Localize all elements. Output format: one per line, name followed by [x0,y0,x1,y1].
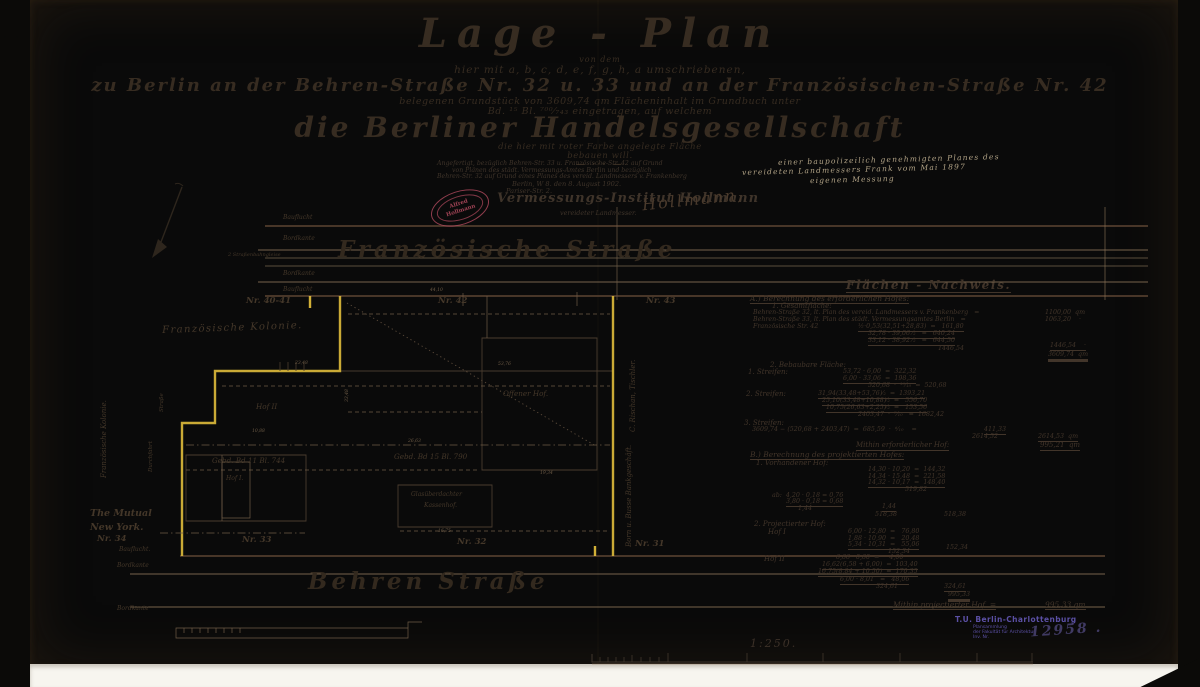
plan-label: Bordkante [283,236,315,242]
plan-label: Kassenhof. [424,503,457,509]
plan-label: Hof II [256,403,277,410]
plan-label: Durchfahrt [149,441,155,472]
plan-label: 10,88 [252,430,265,435]
plan-label: 53,76 [498,363,511,368]
calc-line: 2614,52 [972,434,998,440]
calc-line: 1. Streifen: [748,369,788,376]
header-line-address: zu Berlin an der Behren-Straße Nr. 32 u.… [60,77,1140,95]
plan-label: Hof I. [226,476,243,482]
plan-label: Französische Straße [338,238,676,261]
plan-label: New York. [90,523,143,533]
plan-label: 2 Straßenbahngleise [228,253,281,258]
pencil-note-line: eigenen Messung [810,175,895,185]
calc-line: Hof I [768,529,786,536]
plan-label: Straße [160,393,166,412]
calc-line: 2403,47 · ⁷⁄₁₀ = 1682,42 [858,412,944,418]
plan-label: Born u. Busse Bankgeschäft. [626,445,633,547]
calc-line: 995,33 [948,592,970,600]
calc-line: 2. Projectierter Hof: [754,521,826,528]
plan-label: Behren Straße [308,570,549,593]
calc-line: 152,34 [946,545,968,551]
plan-label: Nr. 32 [457,538,487,547]
plan-label: Bordkante [283,271,315,277]
plan-label: 33,48 [346,389,351,402]
surveyor-title: vereideter Landmesser. [560,210,636,216]
plan-label: Offener Hof. [503,390,548,397]
plan-label: Bauflucht [283,287,312,293]
plan-label: Nr. 43 [646,297,676,306]
plan-label: Bauflucht [283,215,312,221]
header-line-von-dem: von dem [60,56,1140,64]
plan-label: Nr. 34 [97,535,127,544]
header-company-name: die Berliner Handelsgesellschaft [60,114,1140,142]
plan-label: Nr. 33 [242,536,272,545]
calc-line: 6,00 · 8,01 = 48,06 [840,577,909,585]
calc-line: Flächen - Nachweis. [846,279,1011,293]
plan-label: Französische Kolonie. [101,400,108,478]
plan-label: Nr. 42 [438,297,468,306]
calc-line: 324,61 [876,584,898,590]
calc-line: 3609,74 − (520,68 + 2403,47) = 685,59 · … [752,427,917,433]
calc-line: 518,38 [875,512,897,518]
calc-line: 2. Streifen: [746,391,786,398]
plan-label: 19,34 [540,472,553,477]
scanned-lage-plan-document: Lage - Plan von dem hier mit a, b, c, d,… [0,0,1200,687]
calc-line: Französische Str. 42 [753,324,818,330]
calc-line: 3,80 · 0,18 = 0,68 [786,499,843,507]
plan-label: 44,10 [430,289,443,294]
calc-line: 1446,54 · [1050,343,1086,351]
calc-line: Mithin projectierter Hof = [893,601,996,610]
plan-label: 16,75 [438,530,451,535]
calc-line: 1446,54 [938,346,964,352]
plan-label: Bordkante [117,606,149,612]
plan-label: C. Rischan, Tischler. [630,360,637,432]
calc-line: 995,21 qm [1040,442,1080,451]
plan-label: Glasüberdachter [411,492,462,498]
document-title: Lage - Plan [60,14,1140,54]
calc-line: Hof II [764,556,785,563]
calc-line: 1. Vorhandener Hof: [756,460,828,467]
plan-label: Nr. 40-41 [246,297,291,306]
plan-label: 26,63 [408,440,421,445]
plan-label: Gebd. Bd 11 Bl. 744 [212,457,285,464]
calc-line: 3609,74 qm [1048,352,1088,360]
calc-line: 518,38 [944,512,966,518]
map-scale-label: 1:250. [750,637,797,650]
header-line-umschrieben: hier mit a, b, c, d, e, f, g, h, a umsch… [60,65,1140,76]
calc-line: 1063,20 · [1045,317,1081,323]
calc-line: 520,68 · ¹⁰⁄₁₀ = 520,68 [868,383,947,389]
calc-line: 519,82 [905,487,927,493]
plan-label: The Mutual [90,509,152,519]
plan-label: Nr. 31 [635,540,665,549]
plan-label: Bordkante [117,563,149,569]
plan-label: 23,48 [295,362,308,367]
calc-line: 995,33 qm [1045,601,1086,610]
calc-line: 1,44 [798,506,812,512]
plan-label: Gebd. Bd 15 Bl. 790 [394,453,467,460]
plan-label: Bauflucht. [119,547,150,553]
